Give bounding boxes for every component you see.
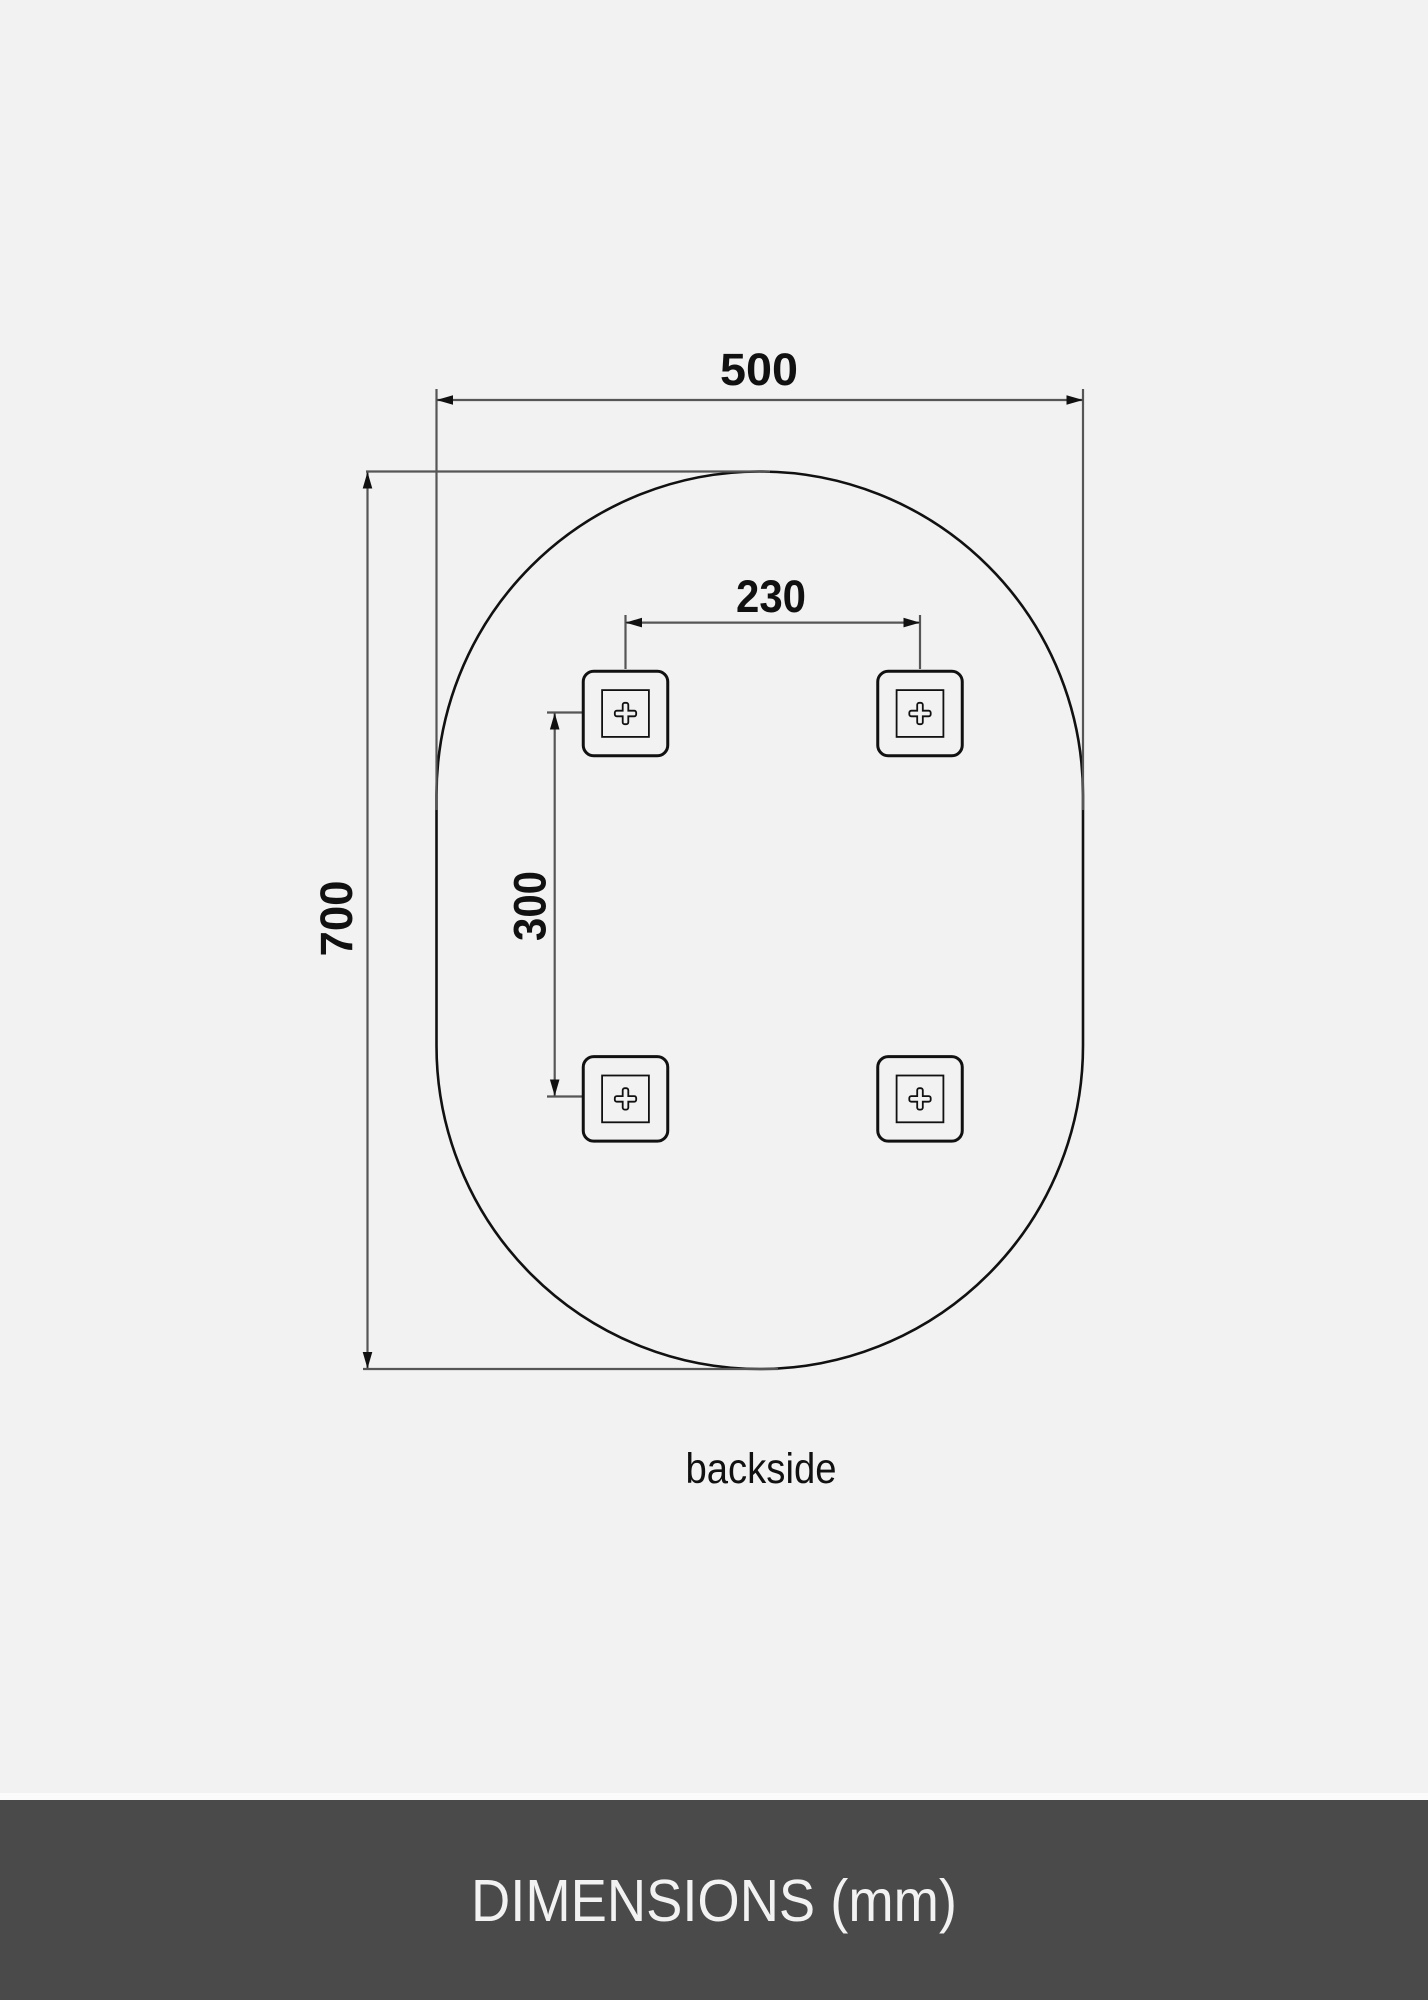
- svg-text:230: 230: [736, 571, 806, 622]
- svg-text:700: 700: [311, 881, 362, 957]
- svg-text:backside: backside: [686, 1445, 837, 1493]
- svg-text:DIMENSIONS (mm): DIMENSIONS (mm): [471, 1867, 957, 1934]
- svg-text:500: 500: [720, 344, 798, 395]
- svg-text:300: 300: [505, 871, 556, 941]
